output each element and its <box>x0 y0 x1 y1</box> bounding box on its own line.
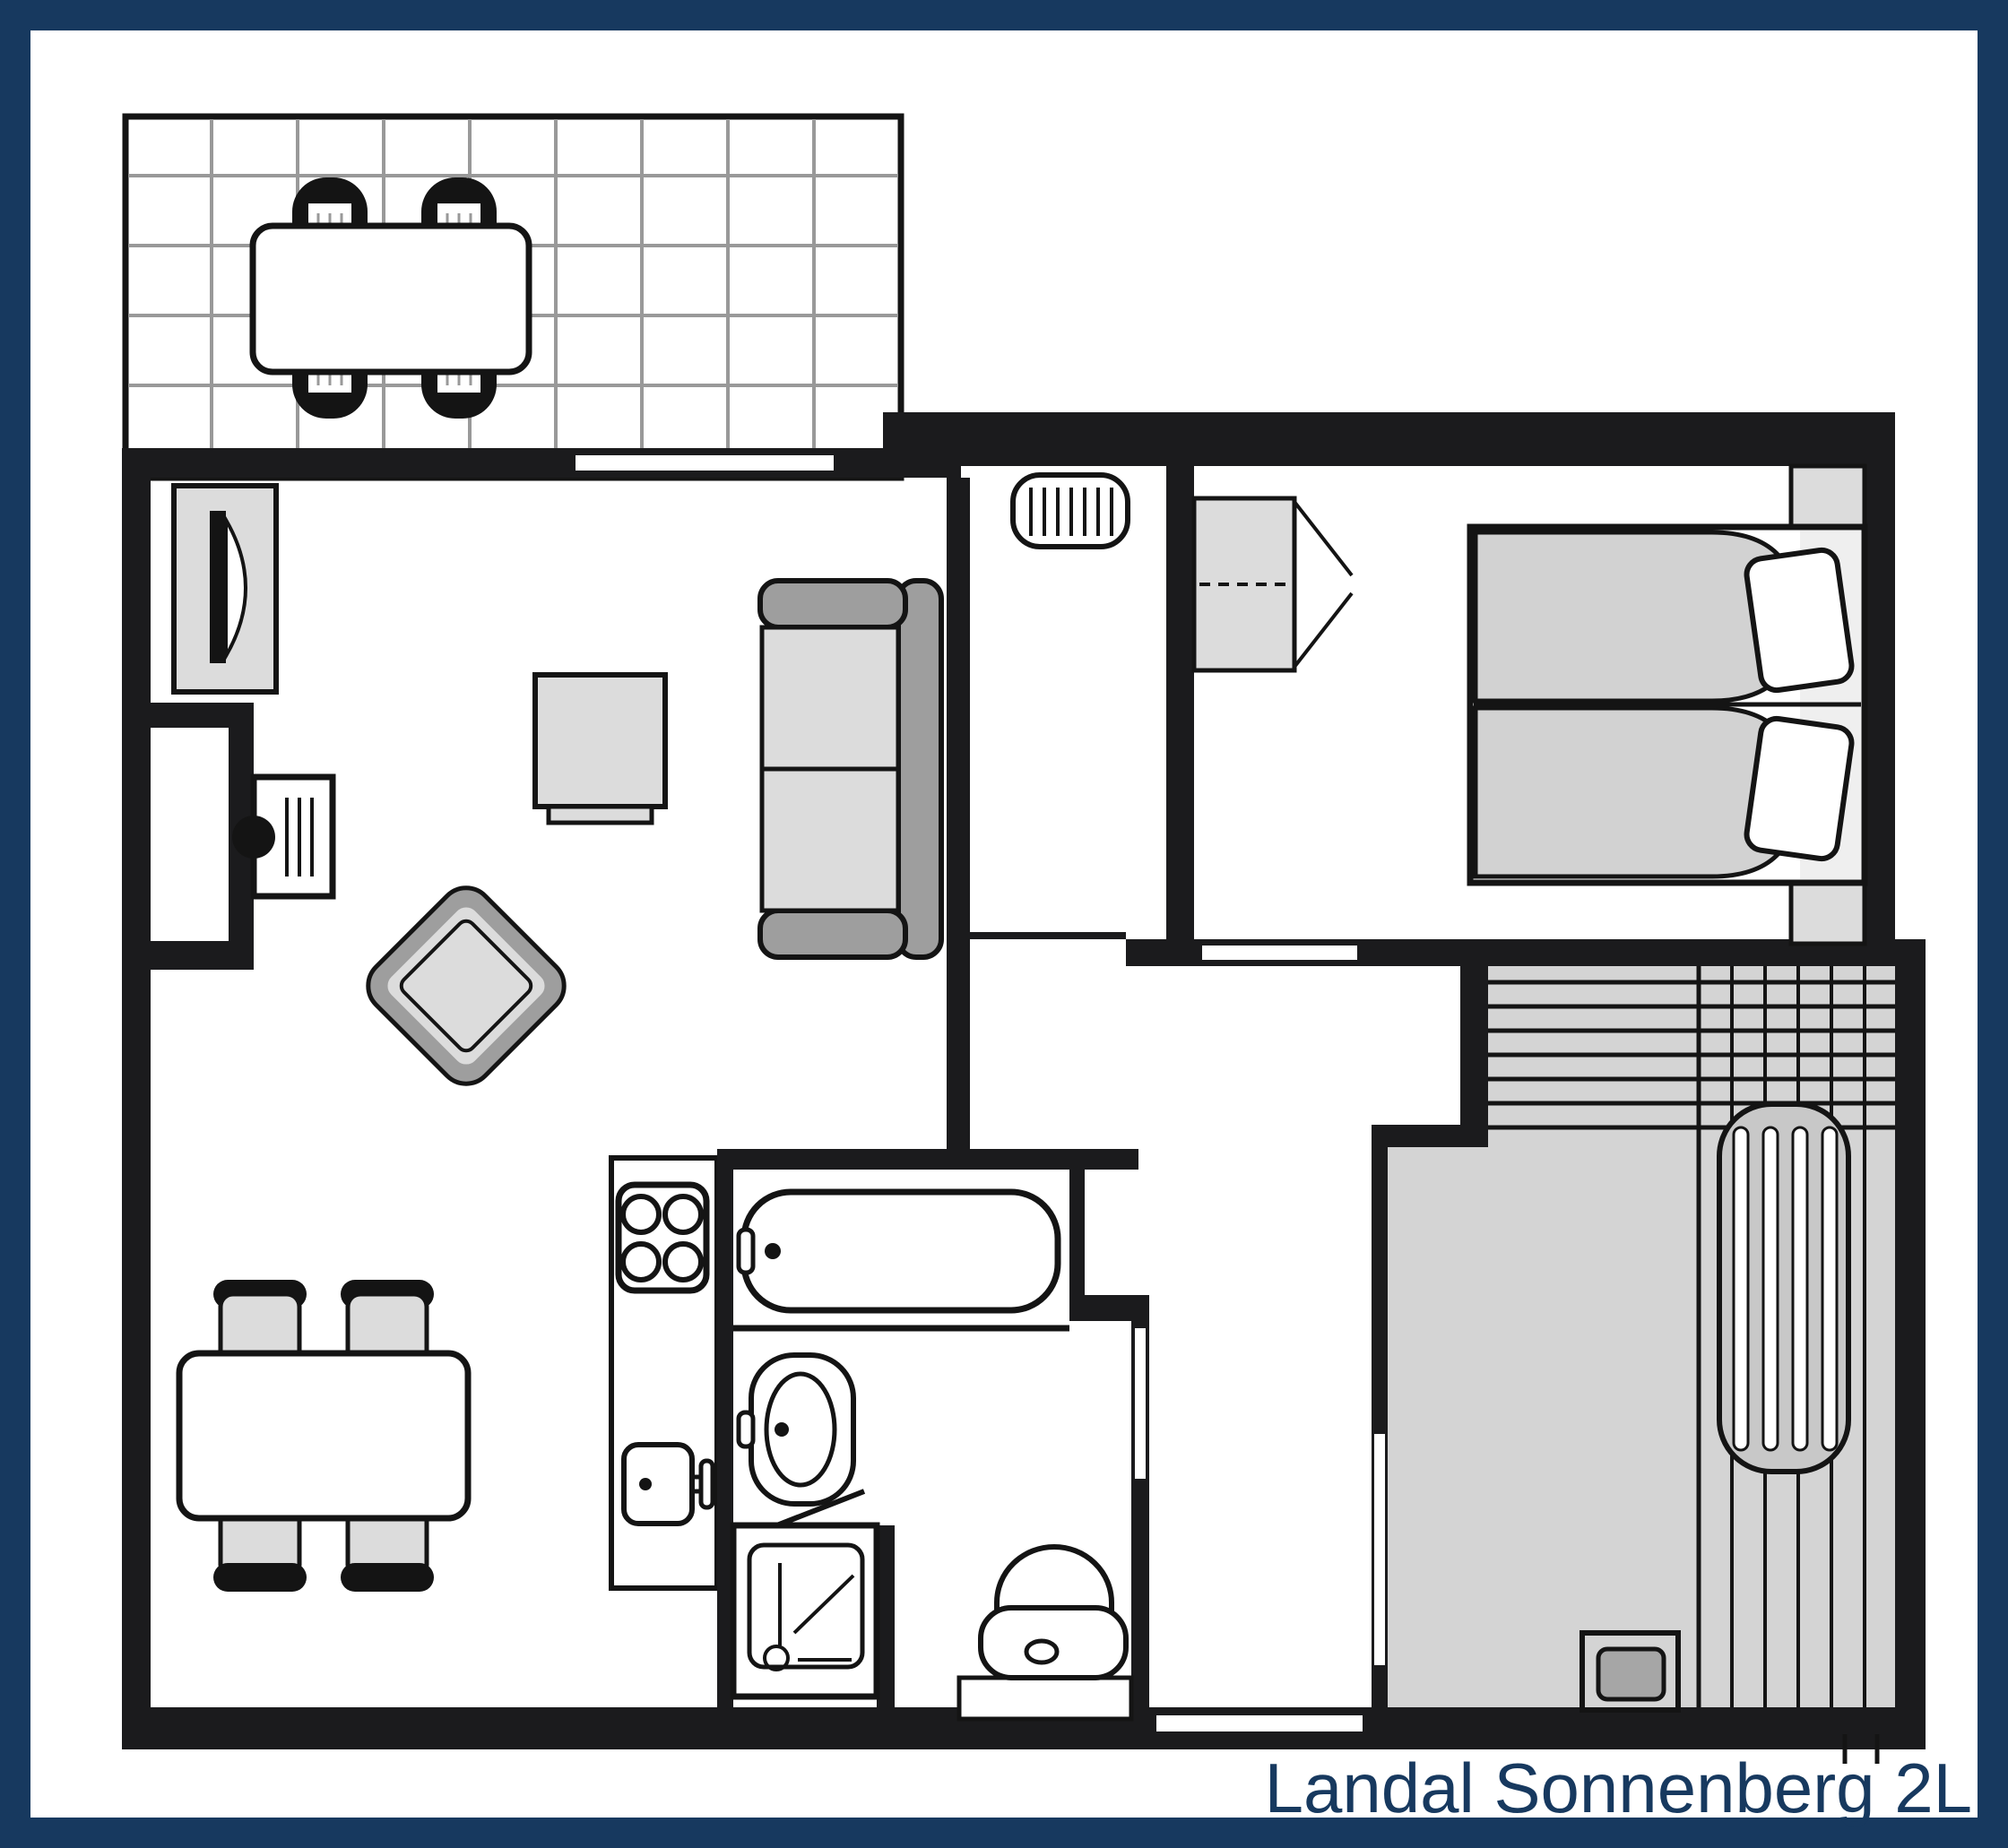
tv-icon <box>210 511 226 663</box>
hallway <box>1013 475 1128 547</box>
coffee-table <box>535 675 665 807</box>
coffee-table-edge <box>549 807 652 823</box>
sauna-door <box>1374 1434 1385 1665</box>
dining-table <box>179 1353 468 1518</box>
sofa-back <box>898 581 941 957</box>
wall-right-lower <box>1895 944 1926 1734</box>
pillow <box>1744 548 1854 693</box>
wall-sauna-jog <box>1372 1125 1488 1147</box>
wall-bath-right <box>1069 1166 1085 1302</box>
bathtub <box>744 1192 1058 1310</box>
entrance-door <box>1156 1715 1363 1731</box>
wall-top <box>883 412 1895 466</box>
burner-icon <box>623 1244 659 1280</box>
wall-living-top <box>122 448 961 478</box>
burner-icon <box>665 1244 701 1280</box>
stove-door-knob-icon <box>232 816 275 859</box>
patio-sliding-door <box>576 455 834 471</box>
bedroom-door <box>1202 946 1357 960</box>
nightstand <box>1791 466 1865 529</box>
radiator-fins-icon <box>1031 488 1112 536</box>
drain-icon <box>639 1478 652 1490</box>
fireplace-bottom <box>151 941 254 970</box>
sofa-cushion <box>762 769 898 911</box>
sofa-cushion <box>762 627 898 769</box>
bath-faucet-icon <box>739 1230 753 1273</box>
chair-back <box>213 1563 307 1592</box>
basin-faucet-icon <box>739 1412 753 1446</box>
burner-icon <box>665 1196 701 1232</box>
flush-button-icon <box>1026 1641 1057 1662</box>
wall-right-upper <box>1865 412 1895 966</box>
sofa-arm <box>760 581 905 627</box>
bathroom-door <box>1135 1328 1146 1479</box>
nightstand <box>1791 883 1865 944</box>
terrace-table <box>253 226 529 372</box>
chair-back <box>341 1563 434 1592</box>
shower-inner <box>749 1545 862 1667</box>
bath-drain-icon <box>765 1243 781 1259</box>
floorplan-drawing: Landal Sonnenberg 2L <box>0 0 2008 1848</box>
fireplace-top <box>151 703 254 728</box>
sauna-heater-top <box>1598 1649 1664 1699</box>
wall-top-jog <box>883 412 961 478</box>
wall-left <box>122 448 151 1749</box>
hall-header-line <box>970 932 1126 939</box>
wall-sauna-left-upper <box>1460 966 1488 1147</box>
sofa <box>760 581 941 957</box>
sofa-arm <box>760 911 905 957</box>
kitchen-sink <box>624 1445 692 1524</box>
terrace <box>125 117 901 478</box>
pillow <box>1744 717 1854 861</box>
toilet-platform <box>959 1678 1131 1719</box>
wall-toilet-jog <box>1069 1295 1149 1321</box>
wall-living-hall <box>947 478 970 1165</box>
burner-icon <box>623 1196 659 1232</box>
faucet-bar-icon <box>701 1461 713 1507</box>
wall-bedroom-left <box>1166 466 1194 944</box>
floorplan-page: Landal Sonnenberg 2L <box>0 0 2008 1848</box>
plan-caption: Landal Sonnenberg 2L <box>1265 1749 1972 1827</box>
basin-drain-icon <box>775 1422 789 1437</box>
